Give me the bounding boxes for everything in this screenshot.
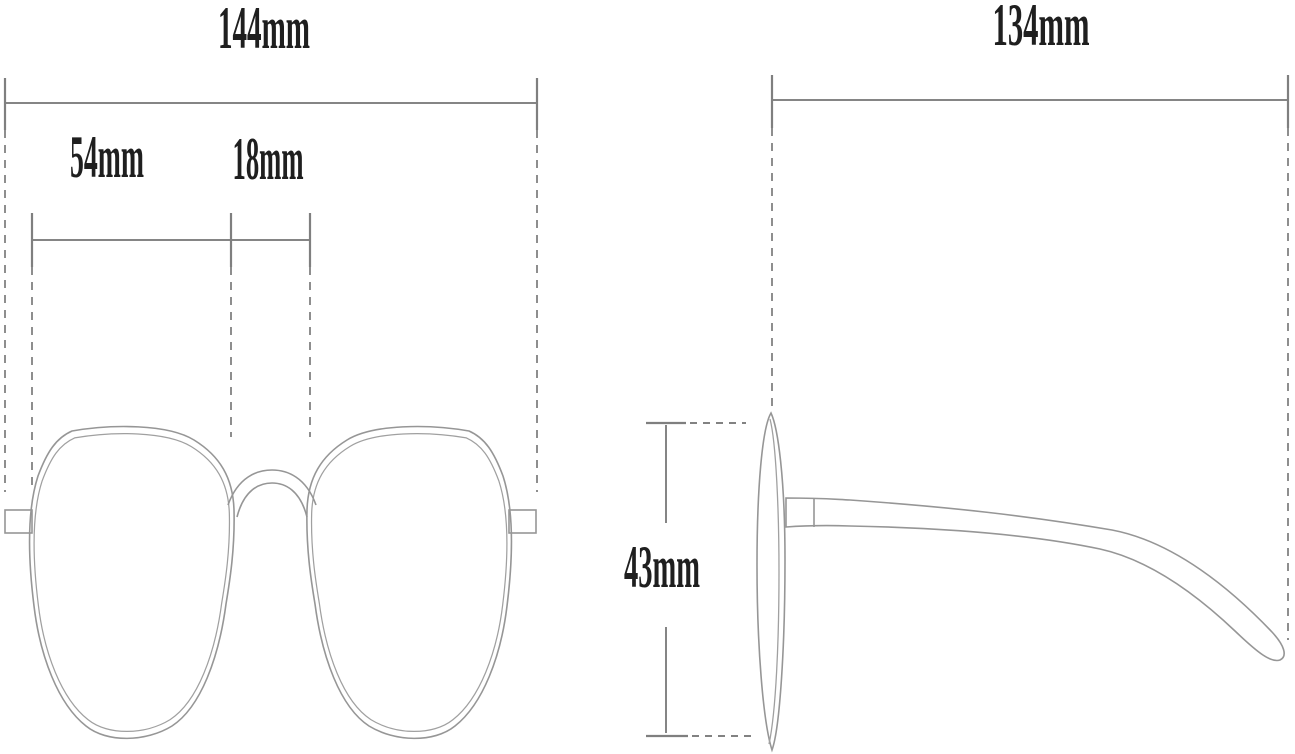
lens-width-label: 54mm bbox=[70, 124, 144, 190]
bridge-width-label: 18mm bbox=[233, 126, 304, 192]
bridge-outer-arc bbox=[228, 470, 316, 505]
front-left-lens-inner-rim bbox=[34, 434, 229, 732]
side-lens-outline bbox=[757, 413, 785, 750]
temple-arm-outline bbox=[786, 498, 1284, 661]
side-temple-arm bbox=[786, 498, 1284, 661]
temple-length-label: 134mm bbox=[993, 0, 1090, 58]
dim-temple-length: 134mm bbox=[772, 0, 1288, 640]
glasses-dimension-diagram: 144mm 54mm 18mm 134mm 43mm bbox=[0, 0, 1295, 754]
front-right-lens-outer-rim bbox=[307, 427, 512, 739]
bridge-inner-arc bbox=[237, 483, 307, 517]
frame-width-label: 144mm bbox=[218, 0, 310, 61]
front-left-lens-outer-rim bbox=[30, 427, 235, 739]
front-right-lens bbox=[307, 427, 512, 739]
dim-frame-width: 144mm bbox=[5, 0, 537, 492]
front-bridge bbox=[228, 470, 316, 517]
front-right-lens-inner-rim bbox=[312, 434, 507, 732]
side-lens-profile bbox=[757, 413, 785, 750]
front-view bbox=[5, 427, 536, 739]
side-view bbox=[757, 413, 1284, 750]
front-left-lens bbox=[30, 427, 235, 739]
dim-lens-and-bridge-width: 54mm 18mm bbox=[32, 124, 310, 490]
front-right-hinge-tab bbox=[509, 510, 536, 533]
front-left-hinge-tab bbox=[5, 510, 32, 533]
diagram-svg: 144mm 54mm 18mm 134mm 43mm bbox=[0, 0, 1295, 754]
dim-lens-height: 43mm bbox=[624, 423, 752, 736]
lens-height-label: 43mm bbox=[624, 534, 700, 600]
